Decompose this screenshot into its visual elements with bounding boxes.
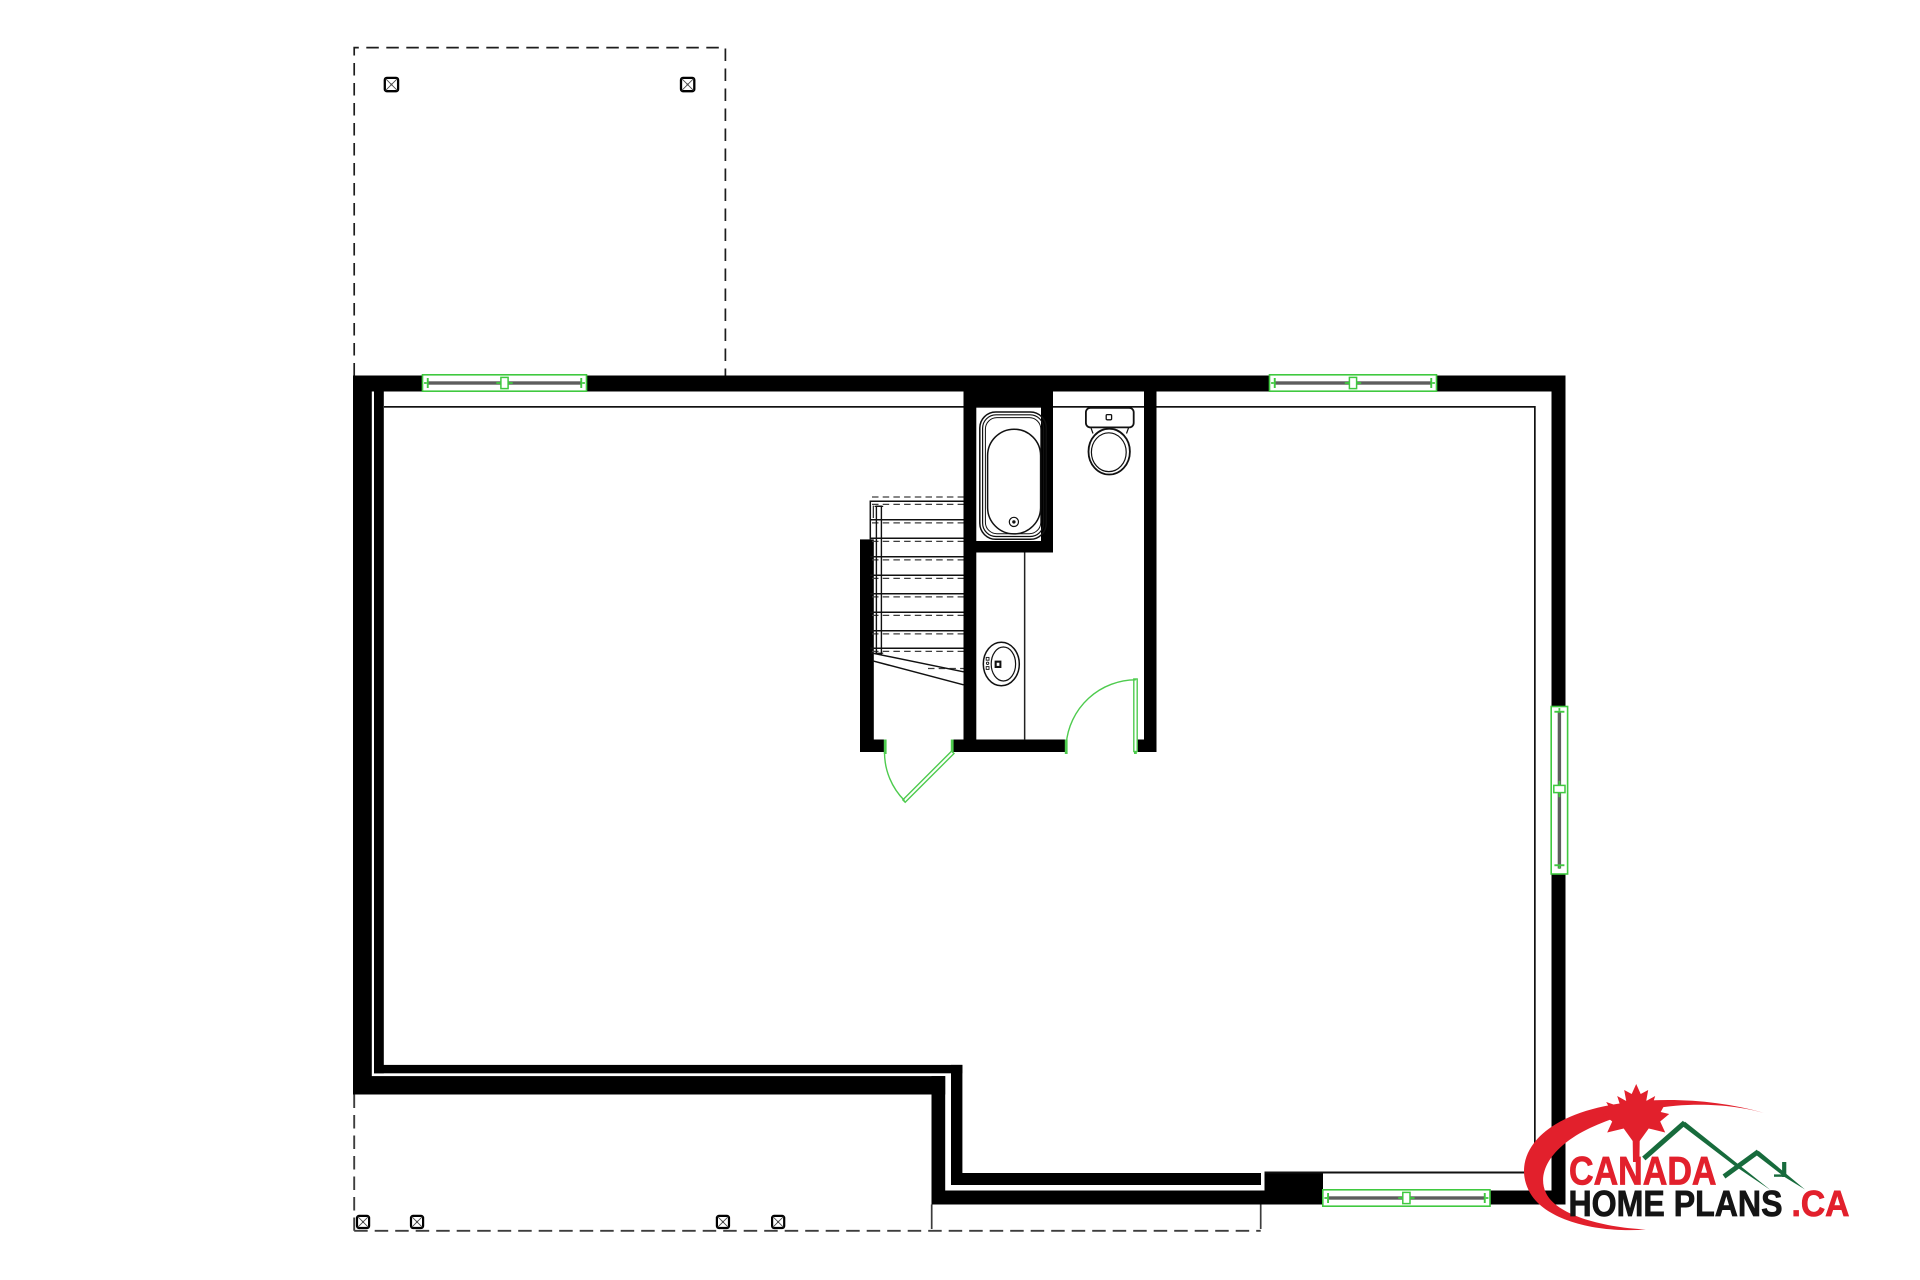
svg-text:HOME PLANS: HOME PLANS: [1569, 1183, 1783, 1224]
svg-text:.CA: .CA: [1792, 1183, 1850, 1224]
